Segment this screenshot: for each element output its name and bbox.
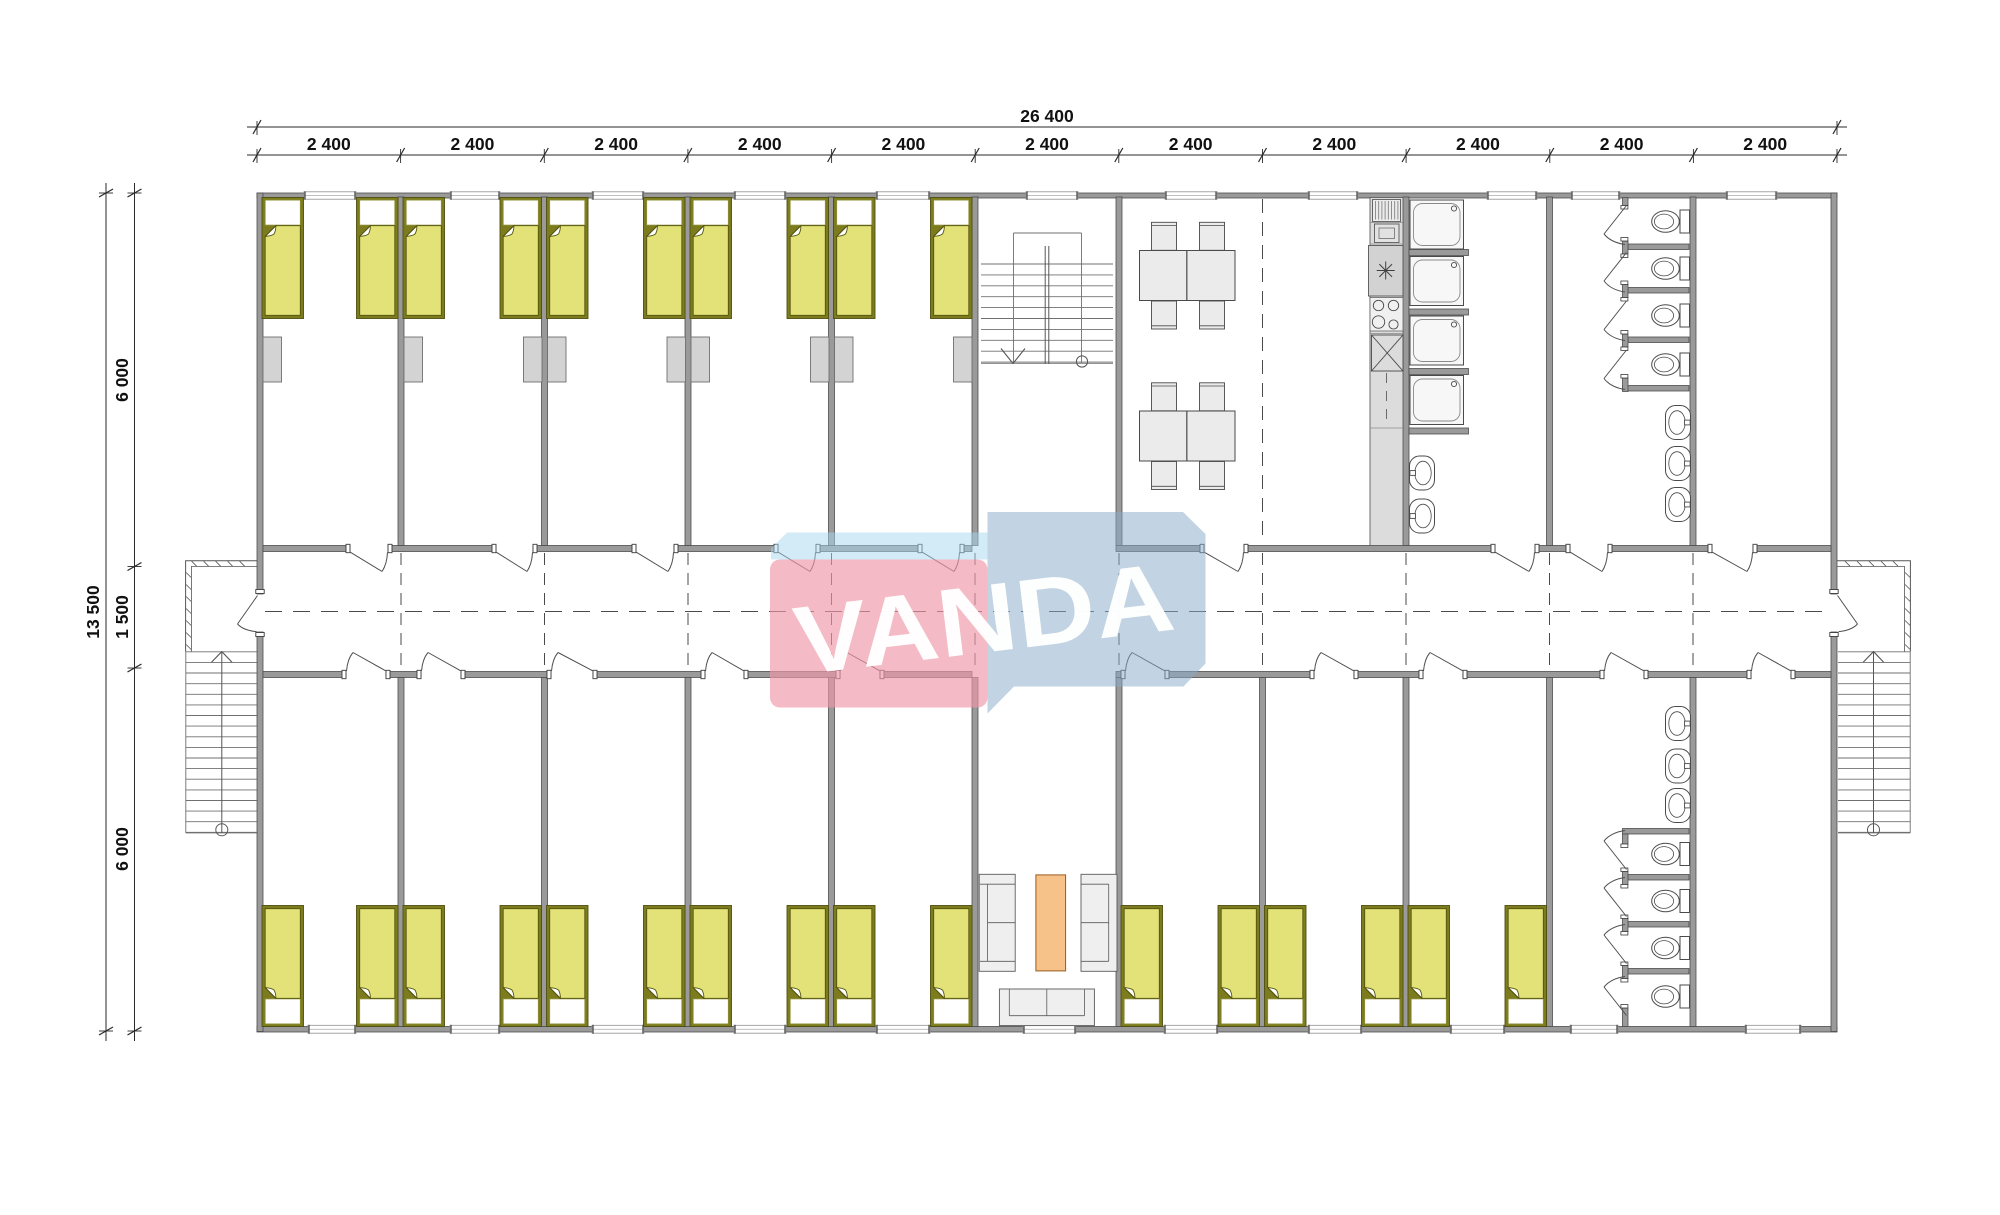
svg-text:6 000: 6 000 (112, 358, 132, 402)
svg-text:2 400: 2 400 (1312, 134, 1356, 154)
svg-text:2 400: 2 400 (451, 134, 495, 154)
svg-text:2 400: 2 400 (1025, 134, 1069, 154)
svg-text:26 400: 26 400 (1020, 106, 1074, 126)
svg-text:1 500: 1 500 (112, 595, 132, 639)
svg-text:2 400: 2 400 (1169, 134, 1213, 154)
svg-text:2 400: 2 400 (594, 134, 638, 154)
svg-text:6 000: 6 000 (112, 827, 132, 871)
svg-text:13 500: 13 500 (83, 585, 103, 639)
svg-text:2 400: 2 400 (1456, 134, 1500, 154)
svg-text:2 400: 2 400 (1743, 134, 1787, 154)
svg-text:2 400: 2 400 (1600, 134, 1644, 154)
svg-text:2 400: 2 400 (307, 134, 351, 154)
svg-text:2 400: 2 400 (882, 134, 926, 154)
svg-text:2 400: 2 400 (738, 134, 782, 154)
